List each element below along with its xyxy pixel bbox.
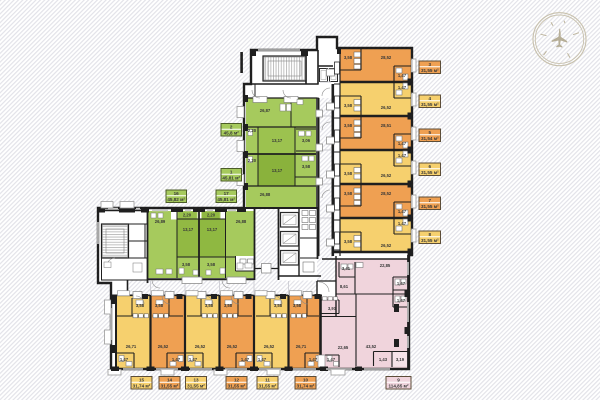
svg-text:31,55 м²: 31,55 м² bbox=[421, 204, 439, 209]
svg-text:3,58: 3,58 bbox=[274, 303, 283, 308]
svg-text:31,74 м²: 31,74 м² bbox=[133, 384, 151, 389]
svg-text:13,17: 13,17 bbox=[207, 227, 218, 232]
svg-text:3,58: 3,58 bbox=[207, 262, 216, 267]
svg-text:26,89: 26,89 bbox=[155, 219, 166, 224]
svg-text:45,8 м²: 45,8 м² bbox=[224, 131, 240, 136]
svg-text:1,47: 1,47 bbox=[309, 357, 318, 362]
svg-text:3,58: 3,58 bbox=[205, 303, 214, 308]
svg-text:1,47: 1,47 bbox=[172, 357, 181, 362]
svg-text:45,81 м²: 45,81 м² bbox=[222, 176, 240, 181]
svg-text:22,65: 22,65 bbox=[338, 345, 349, 350]
svg-text:26,88: 26,88 bbox=[260, 192, 271, 197]
svg-text:1,47: 1,47 bbox=[398, 153, 407, 158]
svg-text:28,52: 28,52 bbox=[381, 55, 392, 60]
svg-text:1,47: 1,47 bbox=[327, 357, 336, 362]
svg-text:1,47: 1,47 bbox=[398, 209, 407, 214]
svg-text:8: 8 bbox=[429, 232, 432, 237]
svg-text:28,52: 28,52 bbox=[381, 191, 392, 196]
svg-text:26,52: 26,52 bbox=[195, 344, 206, 349]
svg-text:31,55 м²: 31,55 м² bbox=[228, 384, 246, 389]
svg-text:13,17: 13,17 bbox=[183, 227, 194, 232]
svg-text:15: 15 bbox=[139, 378, 145, 383]
svg-text:8,61: 8,61 bbox=[340, 284, 349, 289]
svg-text:11: 11 bbox=[265, 378, 270, 383]
svg-text:17: 17 bbox=[224, 191, 230, 196]
svg-text:3,58: 3,58 bbox=[224, 303, 233, 308]
svg-text:9: 9 bbox=[397, 378, 400, 383]
svg-text:31,55 м²: 31,55 м² bbox=[421, 102, 439, 107]
svg-text:3,91: 3,91 bbox=[328, 306, 337, 311]
svg-text:3: 3 bbox=[429, 62, 432, 67]
svg-text:26,52: 26,52 bbox=[227, 344, 238, 349]
svg-text:2: 2 bbox=[230, 125, 233, 130]
svg-text:3,58: 3,58 bbox=[344, 171, 353, 176]
svg-text:1,47: 1,47 bbox=[397, 281, 406, 286]
svg-text:1,47: 1,47 bbox=[258, 357, 267, 362]
svg-text:26,52: 26,52 bbox=[381, 105, 392, 110]
svg-text:2,20: 2,20 bbox=[183, 213, 192, 218]
svg-text:31,55 м²: 31,55 м² bbox=[421, 68, 439, 73]
svg-text:31,55 м²: 31,55 м² bbox=[187, 384, 205, 389]
svg-text:5: 5 bbox=[429, 130, 432, 135]
svg-text:13: 13 bbox=[193, 378, 199, 383]
svg-text:3,58: 3,58 bbox=[155, 303, 164, 308]
svg-text:22,85: 22,85 bbox=[380, 263, 391, 268]
svg-text:1,47: 1,47 bbox=[397, 298, 406, 303]
svg-text:26,88: 26,88 bbox=[236, 219, 247, 224]
svg-text:1,47: 1,47 bbox=[398, 73, 407, 78]
svg-text:1: 1 bbox=[230, 170, 233, 175]
svg-text:3,41: 3,41 bbox=[342, 266, 351, 271]
svg-text:3,58: 3,58 bbox=[293, 303, 302, 308]
svg-text:26,52: 26,52 bbox=[264, 344, 275, 349]
svg-text:6: 6 bbox=[429, 164, 432, 169]
svg-text:1,47: 1,47 bbox=[398, 141, 407, 146]
svg-text:1,47: 1,47 bbox=[241, 357, 250, 362]
svg-text:14: 14 bbox=[167, 378, 173, 383]
svg-text:3,58: 3,58 bbox=[302, 164, 311, 169]
svg-text:2,20: 2,20 bbox=[248, 158, 257, 163]
svg-text:3,58: 3,58 bbox=[136, 303, 145, 308]
svg-text:1,43: 1,43 bbox=[379, 357, 388, 362]
svg-text:3,58: 3,58 bbox=[344, 239, 353, 244]
svg-text:3,19: 3,19 bbox=[396, 357, 405, 362]
svg-text:45,81 м²: 45,81 м² bbox=[217, 197, 235, 202]
svg-text:26,87: 26,87 bbox=[260, 108, 271, 113]
svg-text:3,58: 3,58 bbox=[182, 262, 191, 267]
svg-text:13,17: 13,17 bbox=[272, 138, 283, 143]
svg-text:1,47: 1,47 bbox=[189, 357, 198, 362]
svg-text:26,71: 26,71 bbox=[126, 344, 137, 349]
svg-text:1,47: 1,47 bbox=[120, 357, 129, 362]
svg-text:114,85 м²: 114,85 м² bbox=[388, 384, 408, 389]
svg-text:26,52: 26,52 bbox=[381, 243, 392, 248]
svg-text:28,51: 28,51 bbox=[381, 123, 392, 128]
svg-text:2,20: 2,20 bbox=[248, 128, 257, 133]
svg-text:31,74 м²: 31,74 м² bbox=[297, 384, 315, 389]
svg-text:2,20: 2,20 bbox=[207, 213, 216, 218]
svg-text:12: 12 bbox=[234, 378, 240, 383]
svg-text:26,71: 26,71 bbox=[296, 344, 307, 349]
svg-text:1,47: 1,47 bbox=[398, 221, 407, 226]
svg-text:31,55 м²: 31,55 м² bbox=[161, 384, 179, 389]
svg-text:10: 10 bbox=[303, 378, 309, 383]
svg-text:31,55 м²: 31,55 м² bbox=[421, 238, 439, 243]
svg-text:43,52: 43,52 bbox=[366, 344, 377, 349]
svg-text:16: 16 bbox=[174, 191, 180, 196]
svg-text:3,58: 3,58 bbox=[344, 191, 353, 196]
svg-text:7: 7 bbox=[429, 198, 432, 203]
svg-text:31,55 м²: 31,55 м² bbox=[421, 170, 439, 175]
svg-text:3,58: 3,58 bbox=[344, 123, 353, 128]
svg-text:31,55 м²: 31,55 м² bbox=[259, 384, 277, 389]
svg-text:45,82 м²: 45,82 м² bbox=[167, 197, 185, 202]
svg-text:3,58: 3,58 bbox=[344, 55, 353, 60]
svg-text:31,54 м²: 31,54 м² bbox=[421, 136, 439, 141]
svg-text:26,52: 26,52 bbox=[381, 173, 392, 178]
svg-text:1,47: 1,47 bbox=[398, 85, 407, 90]
svg-text:26,52: 26,52 bbox=[158, 344, 169, 349]
svg-text:4: 4 bbox=[429, 96, 432, 101]
svg-text:3,06: 3,06 bbox=[302, 138, 311, 143]
svg-text:13,17: 13,17 bbox=[272, 168, 283, 173]
svg-text:3,58: 3,58 bbox=[344, 103, 353, 108]
